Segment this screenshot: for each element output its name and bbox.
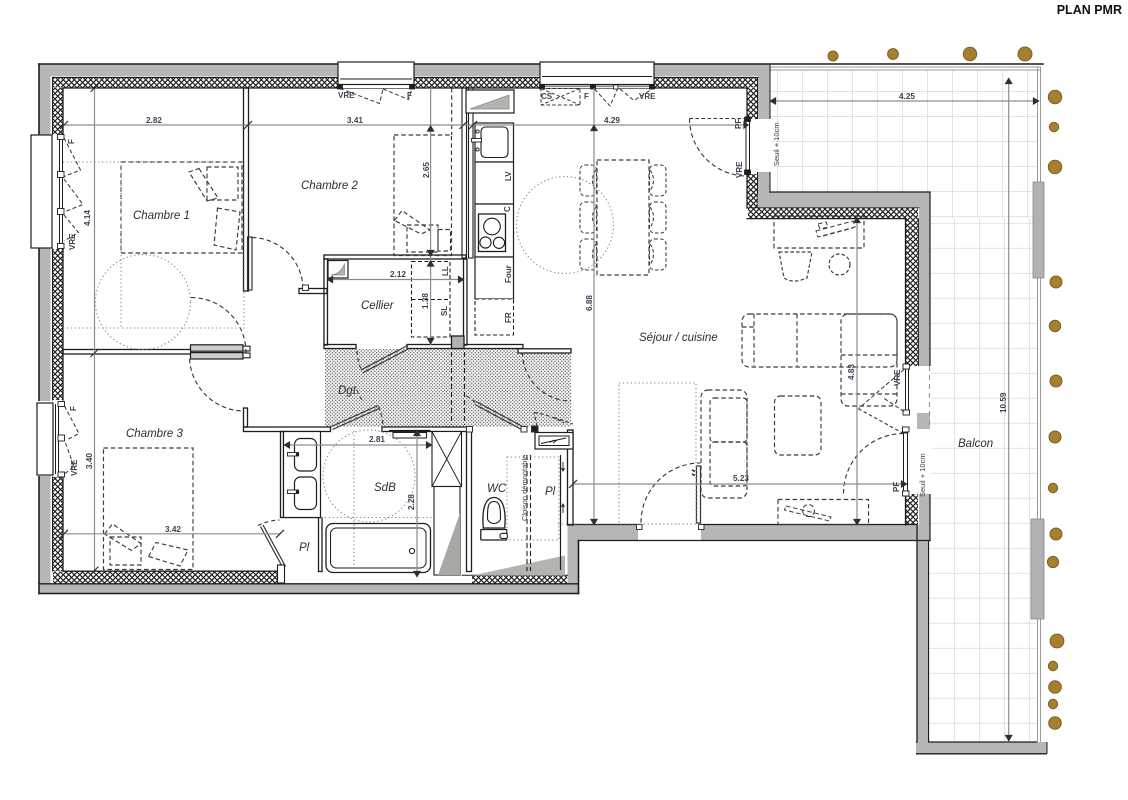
svg-text:Seuil + 10cm: Seuil + 10cm [918, 453, 927, 497]
svg-text:C: C [503, 206, 512, 212]
svg-text:Cloison démontable: Cloison démontable [520, 455, 529, 521]
svg-text:3.42: 3.42 [165, 525, 181, 534]
svg-text:VRE: VRE [735, 161, 744, 178]
svg-text:Seuil + 10cm: Seuil + 10cm [772, 122, 781, 166]
svg-text:3.40: 3.40 [85, 453, 94, 469]
svg-text:PF: PF [892, 482, 901, 492]
svg-text:2.12: 2.12 [390, 270, 406, 279]
svg-text:4.29: 4.29 [604, 116, 620, 125]
svg-text:2.65: 2.65 [422, 162, 431, 178]
svg-text:1.38: 1.38 [421, 293, 430, 309]
svg-text:FR: FR [504, 312, 513, 323]
svg-text:VRE: VRE [893, 369, 902, 386]
svg-text:PF: PF [734, 119, 743, 129]
svg-text:Pl: Pl [299, 542, 310, 554]
svg-text:Chambre 3: Chambre 3 [126, 428, 183, 440]
svg-text:Dgt: Dgt [338, 385, 357, 397]
svg-text:SdB: SdB [374, 482, 396, 494]
svg-text:Balcon: Balcon [958, 438, 993, 450]
svg-text:F: F [67, 139, 76, 144]
svg-text:Cellier: Cellier [361, 300, 395, 312]
svg-text:Séjour / cuisine: Séjour / cuisine [639, 332, 718, 344]
svg-text:2.81: 2.81 [369, 435, 385, 444]
svg-text:SL: SL [440, 306, 449, 316]
svg-text:4.25: 4.25 [899, 92, 915, 101]
svg-text:VRE: VRE [70, 459, 79, 476]
svg-text:Pl: Pl [545, 486, 556, 498]
svg-text:4.14: 4.14 [83, 210, 92, 226]
svg-text:4.83: 4.83 [847, 364, 856, 380]
svg-text:CS: CS [541, 92, 553, 101]
svg-text:5.23: 5.23 [733, 474, 749, 483]
svg-text:VRE: VRE [338, 91, 355, 100]
svg-text:LV: LV [504, 171, 513, 181]
svg-text:F: F [407, 91, 412, 100]
svg-text:2.82: 2.82 [146, 116, 162, 125]
svg-text:2.28: 2.28 [407, 494, 416, 510]
svg-text:Chambre 2: Chambre 2 [301, 180, 358, 192]
svg-text:VRE: VRE [639, 92, 656, 101]
svg-text:Chambre 1: Chambre 1 [133, 210, 190, 222]
svg-text:3.41: 3.41 [347, 116, 363, 125]
svg-text:WC: WC [487, 483, 507, 495]
svg-text:10.59: 10.59 [999, 392, 1008, 413]
svg-text:PLAN PMR: PLAN PMR [1057, 3, 1122, 17]
svg-text:LL: LL [441, 266, 450, 276]
svg-text:F: F [69, 406, 78, 411]
svg-text:6.88: 6.88 [585, 295, 594, 311]
svg-text:Four: Four [504, 265, 513, 283]
svg-text:VRE: VRE [68, 233, 77, 250]
svg-text:F: F [584, 92, 589, 101]
